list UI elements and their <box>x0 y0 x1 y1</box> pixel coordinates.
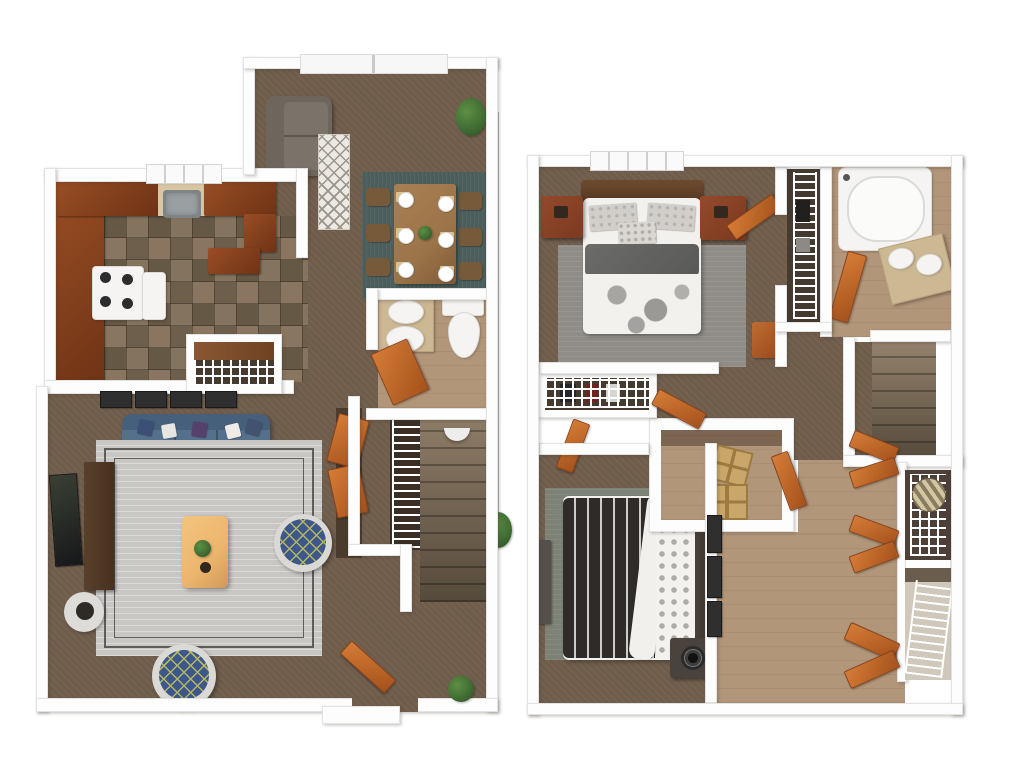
linen-closet-bottom-wall <box>775 322 832 332</box>
nightstand-lamp <box>714 206 728 218</box>
master-right-wall-upper <box>775 167 787 215</box>
bottom-outer-wall <box>36 698 498 712</box>
sofa-pillow <box>137 419 155 437</box>
dining-chair <box>458 228 482 246</box>
master-bottom-wall <box>539 362 719 374</box>
stair-railing <box>392 400 422 548</box>
wall-frame <box>707 515 722 553</box>
wall-frame <box>707 556 722 598</box>
table-centerpiece <box>418 226 432 240</box>
plate <box>398 192 414 208</box>
dining-chair <box>366 188 390 206</box>
wall-picture <box>100 391 132 408</box>
master-window <box>590 151 684 171</box>
plate <box>438 232 454 248</box>
dining-chair <box>366 258 390 276</box>
stove-burner <box>100 272 111 283</box>
kitchen-counter-right <box>244 214 276 252</box>
sofa-pillow <box>161 423 177 439</box>
wall-picture <box>170 391 202 408</box>
kitchen-left-wall <box>44 168 56 392</box>
stairwell-left-wall <box>348 396 360 554</box>
kitchen-sink <box>163 190 201 218</box>
bathroom-left-wall <box>366 288 378 350</box>
coffee-table-decor <box>200 562 211 573</box>
linen-items <box>796 200 810 222</box>
storage-room-shadow <box>661 430 782 446</box>
pantry-wood-floor <box>194 342 274 362</box>
kitchen-counter-top <box>56 180 160 216</box>
bath-closet-wall <box>820 167 832 337</box>
wall-frame <box>707 601 722 637</box>
ottoman-top <box>159 650 209 700</box>
stove-burner <box>122 298 133 309</box>
wall-picture <box>135 391 167 408</box>
entry-stoop <box>322 706 400 724</box>
plate <box>398 228 414 244</box>
entry-plant-icon <box>456 98 486 136</box>
stove-burner <box>122 274 133 285</box>
bathroom-top-wall <box>366 288 494 300</box>
linen-items <box>796 238 810 252</box>
living-plant-icon <box>448 676 474 702</box>
sofa-pillow <box>191 421 208 438</box>
dining-chair <box>458 262 482 280</box>
second-floor-left-wall <box>527 155 539 715</box>
striped-hatbox <box>912 478 946 512</box>
oven-front <box>142 272 166 320</box>
floor-plan-canvas <box>0 0 1024 778</box>
side-table-lamp <box>76 602 94 620</box>
pantry-wire-shelf <box>194 360 274 386</box>
master-headboard <box>581 180 703 200</box>
bathroom-bottom-wall <box>366 408 494 420</box>
master-dotted-duvet <box>585 274 699 334</box>
kitchen-window <box>146 164 222 184</box>
left-outer-wall <box>36 386 48 712</box>
stove-burner <box>100 296 111 307</box>
runner-rug <box>318 134 350 230</box>
master-gray-blanket <box>585 244 699 276</box>
plate <box>438 266 454 282</box>
master-accent-pillow <box>617 221 656 245</box>
coffee-table-plant <box>194 540 211 557</box>
ottoman-top <box>280 519 326 565</box>
media-console <box>84 462 114 590</box>
dining-chair <box>458 192 482 210</box>
plate <box>438 196 454 212</box>
sliding-patio-door <box>300 54 448 74</box>
kitchen-right-wall <box>296 168 308 258</box>
bathroom2-bottom-wall <box>870 330 951 342</box>
wall-picture <box>205 391 237 408</box>
kitchen-peninsula <box>208 248 260 274</box>
bathroom-sink <box>388 300 424 324</box>
second-floor-right-wall <box>951 155 963 715</box>
closet-b-shadow <box>905 568 951 582</box>
dining-chair <box>366 224 390 242</box>
plate <box>398 262 414 278</box>
master-closet-shelf <box>545 378 649 408</box>
entry-left-wall <box>243 57 255 175</box>
speaker-icon <box>681 646 705 670</box>
bedroom2-top-wall <box>539 443 649 455</box>
second-floor-bottom-wall <box>527 703 963 715</box>
nightstand-lamp <box>554 206 568 218</box>
shower-head-icon <box>843 174 850 181</box>
stairwell-lower-wall <box>400 544 412 612</box>
bathtub-basin <box>847 176 925 242</box>
kitchen-counter-top-right <box>204 180 276 216</box>
right-outer-wall <box>486 57 498 712</box>
